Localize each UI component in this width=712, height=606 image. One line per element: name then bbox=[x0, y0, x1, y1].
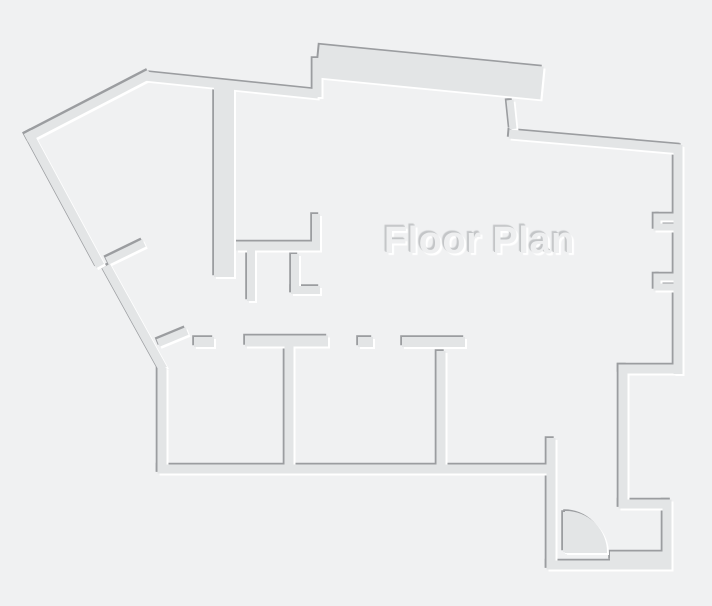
door-swing bbox=[566, 512, 606, 552]
plan-layer-shadow bbox=[28, 56, 681, 568]
floor-plan-page: Floor Plan bbox=[0, 0, 712, 606]
wall-segment bbox=[510, 100, 513, 129]
wall-segment bbox=[318, 61, 542, 83]
floor-plan-canvas bbox=[0, 0, 712, 606]
floor-plan-title: Floor Plan bbox=[384, 222, 575, 260]
wall-segment bbox=[158, 331, 187, 343]
wall-segment bbox=[106, 266, 163, 369]
wall-segment bbox=[30, 76, 146, 136]
wall-segment bbox=[30, 136, 98, 262]
